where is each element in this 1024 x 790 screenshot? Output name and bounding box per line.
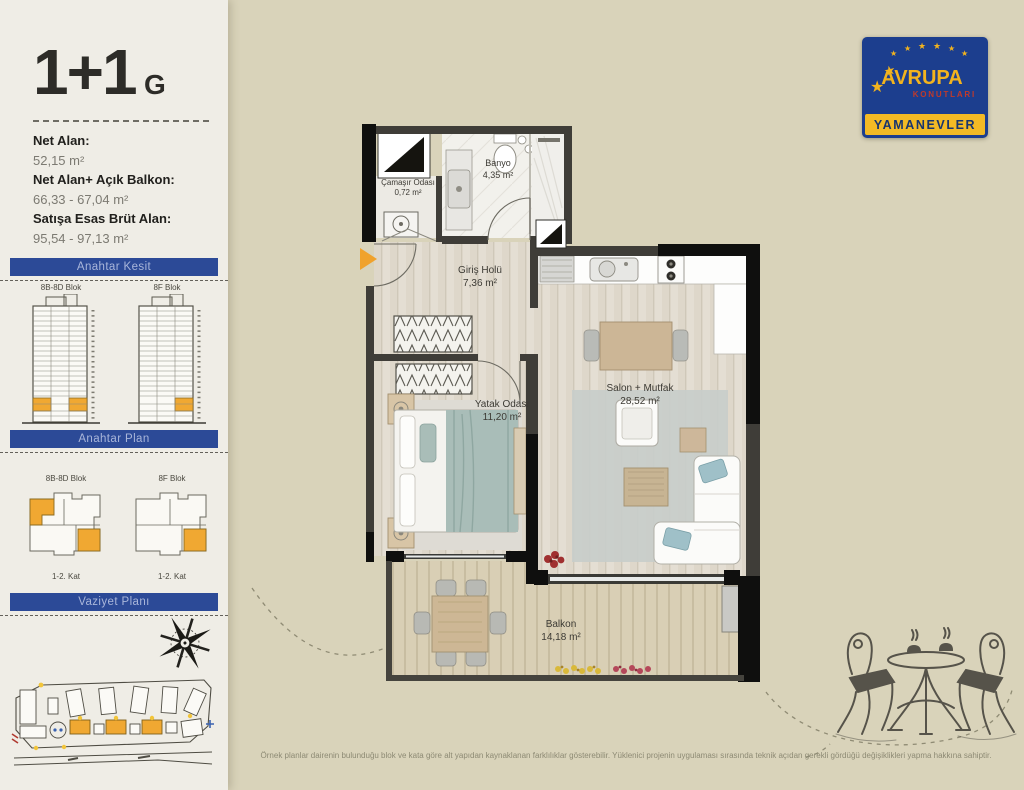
room-label-salon-mutfak: Salon + Mutfak 28,52 m²	[580, 382, 700, 408]
info-value: 95,54 - 97,13 m²	[33, 229, 213, 249]
logo-brand-text: AVRUPA	[862, 67, 982, 90]
keyplan-caption: 1-2. Kat	[20, 572, 112, 581]
section-header-anahtar-plan: Anahtar Plan	[10, 430, 218, 448]
keyplan-caption: 1-2. Kat	[126, 572, 218, 581]
tower-elevation-drawing	[122, 294, 212, 434]
star-icon: ★	[933, 41, 941, 52]
keyplan-label: 8F Blok	[126, 474, 218, 483]
bistro-table-sketch	[828, 612, 1024, 764]
sidebar: 1+1 G Net Alan: 52,15 m² Net Alan+ Açık …	[0, 0, 228, 790]
info-label: Net Alan:	[33, 131, 213, 151]
info-label: Satışa Esas Brüt Alan:	[33, 209, 213, 229]
keyplan-label: 8B-8D Blok	[20, 474, 112, 483]
plan-type-title: 1+1	[33, 40, 136, 104]
plan-type-suffix: G	[144, 69, 166, 101]
keyplan-drawing	[126, 485, 218, 565]
keyplan-drawing	[20, 485, 112, 565]
tower-figure-8f: 8F Blok	[122, 283, 212, 439]
page-title: 1+1 G	[33, 40, 166, 104]
room-label-banyo: Banyo 4,35 m²	[462, 158, 534, 181]
room-label-giris-holu: Giriş Holü 7,36 m²	[430, 264, 530, 290]
section-header-vaziyet-plani: Vaziyet Planı	[10, 593, 218, 611]
section-divider	[0, 280, 228, 281]
tower-label: 8F Blok	[122, 283, 212, 292]
key-section-towers: 8B-8D Blok 8F Blok	[16, 283, 212, 439]
logo-project-band: YAMANEVLER	[865, 114, 985, 135]
keyplan-figure-8f: 8F Blok 1-2. Kat	[126, 474, 218, 581]
floor-plan-drawing	[358, 118, 778, 700]
tower-figure-8b8d: 8B-8D Blok	[16, 283, 106, 439]
section-divider	[0, 452, 228, 453]
brand-logo: ★ ★ ★ ★ ★ ★ ★ ★ AVRUPA KONUTLARI YAMANEV…	[862, 37, 988, 138]
info-value: 66,33 - 67,04 m²	[33, 190, 213, 210]
room-label-balkon: Balkon 14,18 m²	[516, 618, 606, 644]
star-icon: ★	[890, 49, 897, 58]
keyplan-figure-8b8d: 8B-8D Blok 1-2. Kat	[20, 474, 112, 581]
disclaimer-text: Örnek planlar dairenin bulunduğu blok ve…	[238, 751, 1014, 760]
info-label: Net Alan+ Açık Balkon:	[33, 170, 213, 190]
star-icon: ★	[948, 44, 955, 53]
star-icon: ★	[918, 41, 926, 52]
key-plan-figures: 8B-8D Blok 1-2. Kat 8F Blok 1-2. Kat	[20, 474, 218, 581]
tower-elevation-drawing	[16, 294, 106, 434]
section-header-anahtar-kesit: Anahtar Kesit	[10, 258, 218, 276]
shaft-symbols	[536, 220, 566, 248]
area-info-list: Net Alan: 52,15 m² Net Alan+ Açık Balkon…	[33, 131, 213, 248]
compass-rose-icon	[150, 612, 220, 674]
title-divider	[33, 120, 209, 122]
star-icon: ★	[961, 49, 968, 58]
info-value: 52,15 m²	[33, 151, 213, 171]
floor-plan: Çamaşır Odası 0,72 m² Banyo 4,35 m² Giri…	[358, 118, 778, 700]
site-plan-drawing	[8, 668, 220, 774]
room-label-yatak-odasi: Yatak Odası 11,20 m²	[454, 398, 550, 424]
tower-label: 8B-8D Blok	[16, 283, 106, 292]
star-icon: ★	[904, 44, 911, 53]
room-label-camasir-odasi: Çamaşır Odası 0,72 m²	[376, 178, 440, 199]
logo-sub-text: KONUTLARI	[913, 90, 976, 99]
